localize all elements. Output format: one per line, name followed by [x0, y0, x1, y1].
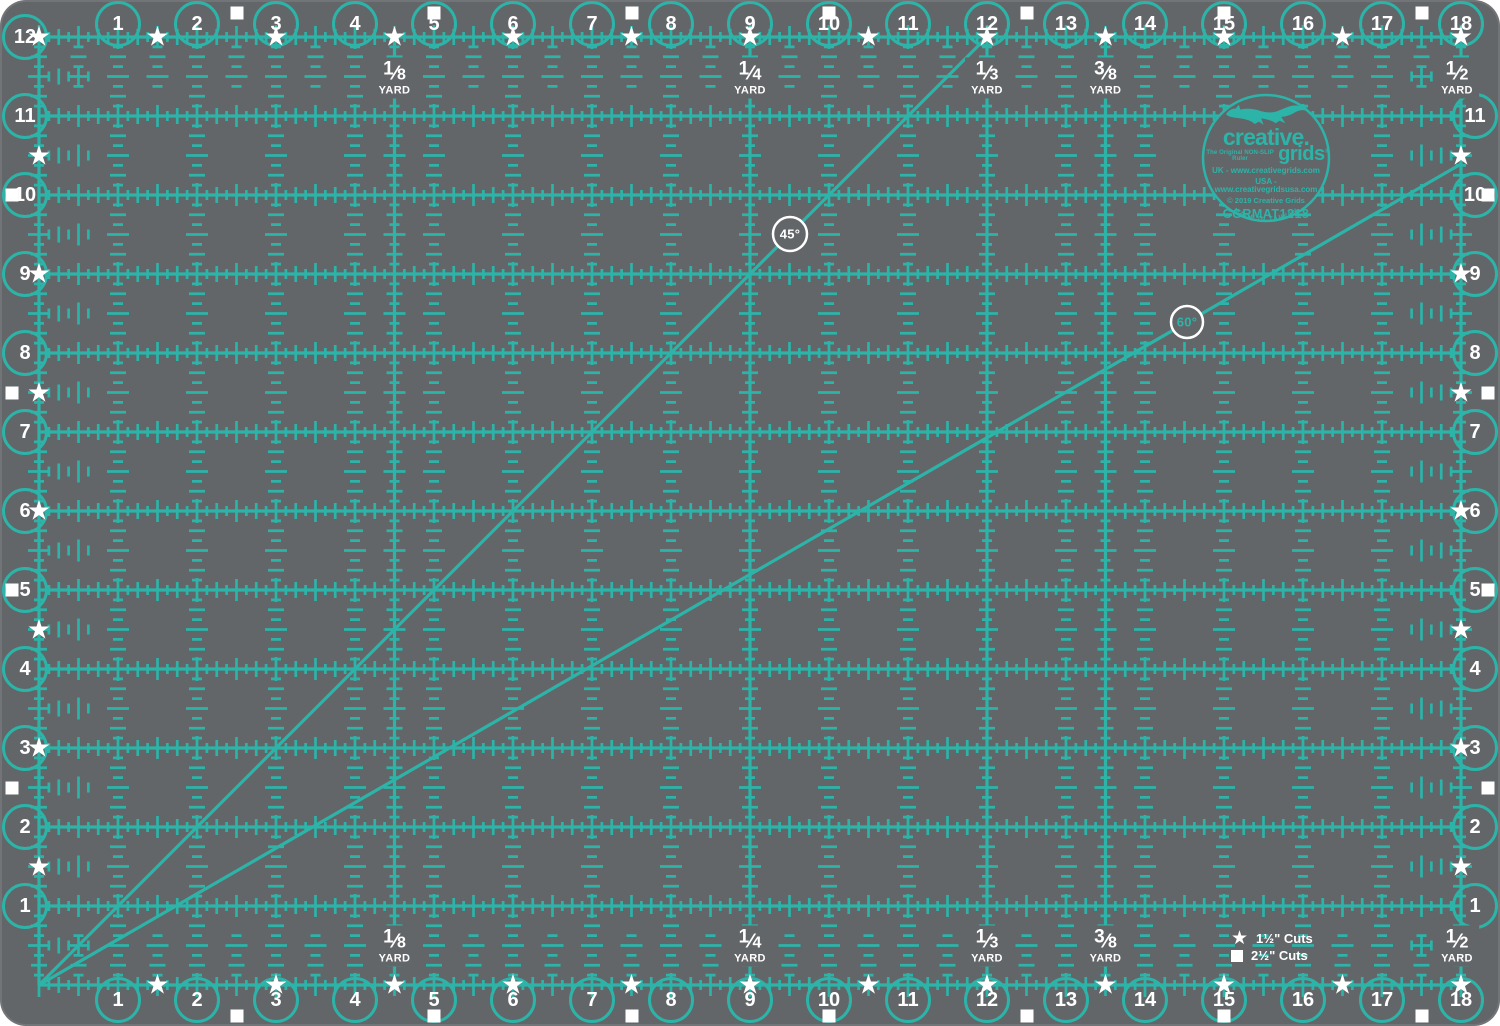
ruler-number-bottom: 11	[885, 977, 931, 1023]
ruler-number-top: 8	[648, 1, 694, 47]
yard-fraction: 1⁄3	[971, 928, 1003, 952]
creative-grids-logo: creative. The Original NON-SLIP Ruler gr…	[1203, 97, 1329, 219]
star-marker: ★	[145, 24, 169, 51]
ruler-number-bottom: 14	[1122, 977, 1168, 1023]
square-marker	[625, 7, 638, 20]
star-marker: ★	[27, 735, 51, 762]
star-marker: ★	[1449, 142, 1473, 169]
cut-legend: ★ 1½" Cuts 2½" Cuts	[1231, 930, 1313, 964]
star-marker: ★	[1449, 379, 1473, 406]
ruler-number-left: 1	[2, 883, 48, 929]
yard-fraction-part: 3	[1094, 59, 1105, 80]
ruler-number-right: 8	[1452, 330, 1498, 376]
ruler-number-bottom: 2	[174, 977, 220, 1023]
ruler-number-left: 8	[2, 330, 48, 376]
ruler-number-top: 14	[1122, 1, 1168, 47]
legend-square-row: 2½" Cuts	[1231, 947, 1313, 964]
yard-fraction-part: 8	[1108, 935, 1117, 952]
ruler-number-bottom: 8	[648, 977, 694, 1023]
star-marker: ★	[27, 142, 51, 169]
square-marker	[6, 584, 19, 597]
star-marker: ★	[738, 972, 762, 999]
ruler-number-top: 2	[174, 1, 220, 47]
yard-fraction-part: 3	[1094, 927, 1105, 948]
star-marker: ★	[1212, 24, 1236, 51]
logo-uk-line: UK - www.creativegrids.com	[1212, 167, 1320, 175]
square-marker	[1482, 584, 1495, 597]
ruler-number-right: 7	[1452, 409, 1498, 455]
star-marker: ★	[1449, 498, 1473, 525]
yard-fraction: 1⁄8	[379, 928, 411, 952]
yard-fraction: 1⁄4	[734, 928, 766, 952]
star-marker: ★	[1330, 972, 1354, 999]
star-marker: ★	[1449, 261, 1473, 288]
yard-marker-label: 1⁄3YARD	[965, 926, 1009, 967]
cutting-mat: 1234567891011121314151617181234567891011…	[0, 0, 1500, 1026]
yard-fraction-part: 1	[739, 59, 750, 80]
star-marker: ★	[27, 261, 51, 288]
yard-fraction-part: 8	[397, 935, 406, 952]
registered-mark: ®	[1325, 149, 1329, 155]
yard-fraction-part: 1	[383, 59, 394, 80]
ruler-number-bottom: 7	[569, 977, 615, 1023]
yard-fraction: 1⁄4	[734, 60, 766, 84]
square-marker	[1482, 781, 1495, 794]
yard-unit-label: YARD	[1090, 954, 1122, 965]
star-icon: ★	[1231, 929, 1248, 948]
star-marker: ★	[27, 24, 51, 51]
ruler-number-right: 1	[1452, 883, 1498, 929]
legend-star-row: ★ 1½" Cuts	[1231, 930, 1313, 947]
square-marker	[6, 386, 19, 399]
square-marker	[1482, 189, 1495, 202]
square-marker	[1218, 1010, 1231, 1023]
ruler-number-top: 4	[332, 1, 378, 47]
yard-unit-label: YARD	[971, 86, 1003, 97]
ruler-number-left: 11	[2, 93, 48, 139]
angle-60-label: 60°	[1177, 315, 1198, 330]
star-marker: ★	[1093, 972, 1117, 999]
square-marker	[230, 1010, 243, 1023]
square-marker	[823, 1010, 836, 1023]
yard-fraction-part: 2	[1460, 935, 1469, 952]
square-marker	[6, 189, 19, 202]
yard-fraction-part: 1	[976, 59, 987, 80]
yard-fraction-part: 3	[990, 935, 999, 952]
ruler-number-left: 2	[2, 804, 48, 850]
square-marker	[625, 1010, 638, 1023]
star-marker: ★	[501, 972, 525, 999]
square-marker	[1415, 7, 1428, 20]
yard-fraction-part: 1	[1446, 59, 1457, 80]
yard-marker-label: 1⁄8YARD	[373, 926, 417, 967]
star-marker: ★	[619, 972, 643, 999]
yard-marker-label: 1⁄2YARD	[1435, 58, 1479, 99]
star-cuts-label: 1½" Cuts	[1256, 931, 1313, 946]
star-marker: ★	[619, 24, 643, 51]
yard-fraction-part: 4	[753, 67, 762, 84]
star-marker: ★	[1449, 853, 1473, 880]
yard-fraction-part: 3	[990, 67, 999, 84]
ruler-number-left: 7	[2, 409, 48, 455]
yard-unit-label: YARD	[1441, 954, 1473, 965]
yard-marker-label: 1⁄4YARD	[728, 58, 772, 99]
yard-unit-label: YARD	[379, 86, 411, 97]
yard-unit-label: YARD	[971, 954, 1003, 965]
ruler-number-top: 13	[1043, 1, 1089, 47]
logo-brand-row: The Original NON-SLIP Ruler grids ®	[1203, 144, 1329, 164]
star-marker: ★	[27, 616, 51, 643]
yard-fraction: 1⁄8	[379, 60, 411, 84]
ruler-number-bottom: 4	[332, 977, 378, 1023]
square-cuts-label: 2½" Cuts	[1251, 948, 1308, 963]
star-marker: ★	[27, 853, 51, 880]
yard-fraction-part: 2	[1460, 67, 1469, 84]
square-marker	[6, 781, 19, 794]
svg-text:MADE IN TAIWAN: MADE IN TAIWAN	[1233, 207, 1300, 221]
star-marker: ★	[1449, 616, 1473, 643]
star-marker: ★	[975, 24, 999, 51]
square-marker	[428, 7, 441, 20]
square-marker	[1415, 1010, 1428, 1023]
yard-fraction: 1⁄2	[1441, 60, 1473, 84]
square-marker	[1482, 386, 1495, 399]
yard-fraction: 1⁄3	[971, 60, 1003, 84]
yard-marker-label: 1⁄4YARD	[728, 926, 772, 967]
star-marker: ★	[264, 24, 288, 51]
yard-marker-label: 3⁄8YARD	[1084, 58, 1128, 99]
star-marker: ★	[382, 972, 406, 999]
square-marker	[428, 1010, 441, 1023]
square-marker	[230, 7, 243, 20]
square-marker	[1218, 7, 1231, 20]
yard-marker-label: 1⁄3YARD	[965, 58, 1009, 99]
star-marker: ★	[856, 24, 880, 51]
square-marker	[823, 7, 836, 20]
star-marker: ★	[1449, 24, 1473, 51]
ruler-number-right: 2	[1452, 804, 1498, 850]
yard-marker-label: 1⁄8YARD	[373, 58, 417, 99]
made-in-label: MADE IN TAIWAN	[1233, 207, 1300, 221]
ruler-number-top: 11	[885, 1, 931, 47]
yard-fraction: 1⁄2	[1441, 928, 1473, 952]
yard-unit-label: YARD	[734, 954, 766, 965]
yard-fraction-part: 1	[383, 927, 394, 948]
yard-fraction-part: 8	[397, 67, 406, 84]
square-marker	[1020, 1010, 1033, 1023]
yard-fraction-part: 4	[753, 935, 762, 952]
star-marker: ★	[1093, 24, 1117, 51]
logo-tagline: The Original NON-SLIP Ruler	[1203, 150, 1277, 162]
yard-marker-label: 1⁄2YARD	[1435, 926, 1479, 967]
ruler-number-top: 7	[569, 1, 615, 47]
yard-unit-label: YARD	[734, 86, 766, 97]
ruler-number-bottom: 13	[1043, 977, 1089, 1023]
star-marker: ★	[145, 972, 169, 999]
ruler-number-top: 1	[95, 1, 141, 47]
star-marker: ★	[1330, 24, 1354, 51]
star-marker: ★	[975, 972, 999, 999]
yard-fraction-part: 1	[739, 927, 750, 948]
star-marker: ★	[1449, 735, 1473, 762]
square-marker	[1020, 7, 1033, 20]
ruler-number-top: 17	[1359, 1, 1405, 47]
star-marker: ★	[27, 379, 51, 406]
yard-fraction-part: 8	[1108, 67, 1117, 84]
ruler-number-bottom: 16	[1280, 977, 1326, 1023]
yard-unit-label: YARD	[379, 954, 411, 965]
star-marker: ★	[738, 24, 762, 51]
angle-45-label: 45°	[780, 227, 801, 242]
yard-marker-label: 3⁄8YARD	[1084, 926, 1128, 967]
star-marker: ★	[264, 972, 288, 999]
yard-fraction: 3⁄8	[1090, 928, 1122, 952]
star-marker: ★	[856, 972, 880, 999]
ruler-number-top: 16	[1280, 1, 1326, 47]
star-marker: ★	[1449, 972, 1473, 999]
star-marker: ★	[501, 24, 525, 51]
square-icon	[1231, 950, 1243, 962]
star-marker: ★	[1212, 972, 1236, 999]
logo-brand-bottom: grids	[1278, 144, 1324, 164]
star-marker: ★	[27, 498, 51, 525]
yard-unit-label: YARD	[1090, 86, 1122, 97]
yard-unit-label: YARD	[1441, 86, 1473, 97]
ruler-number-bottom: 17	[1359, 977, 1405, 1023]
ruler-number-left: 4	[2, 646, 48, 692]
yard-fraction: 3⁄8	[1090, 60, 1122, 84]
ruler-number-right: 4	[1452, 646, 1498, 692]
star-marker: ★	[382, 24, 406, 51]
ruler-number-bottom: 1	[95, 977, 141, 1023]
ruler-number-right: 11	[1452, 93, 1498, 139]
made-in-arc: MADE IN TAIWAN	[1201, 185, 1331, 221]
yard-fraction-part: 1	[1446, 927, 1457, 948]
yard-fraction-part: 1	[976, 927, 987, 948]
